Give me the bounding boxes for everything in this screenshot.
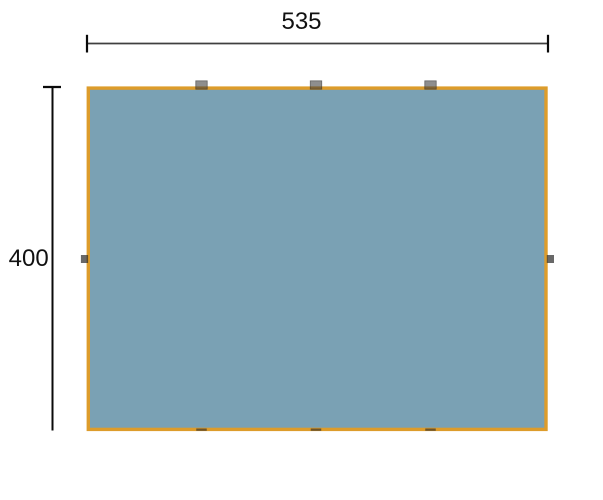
- svg-text:400: 400: [9, 245, 49, 272]
- svg-text:535: 535: [281, 8, 321, 35]
